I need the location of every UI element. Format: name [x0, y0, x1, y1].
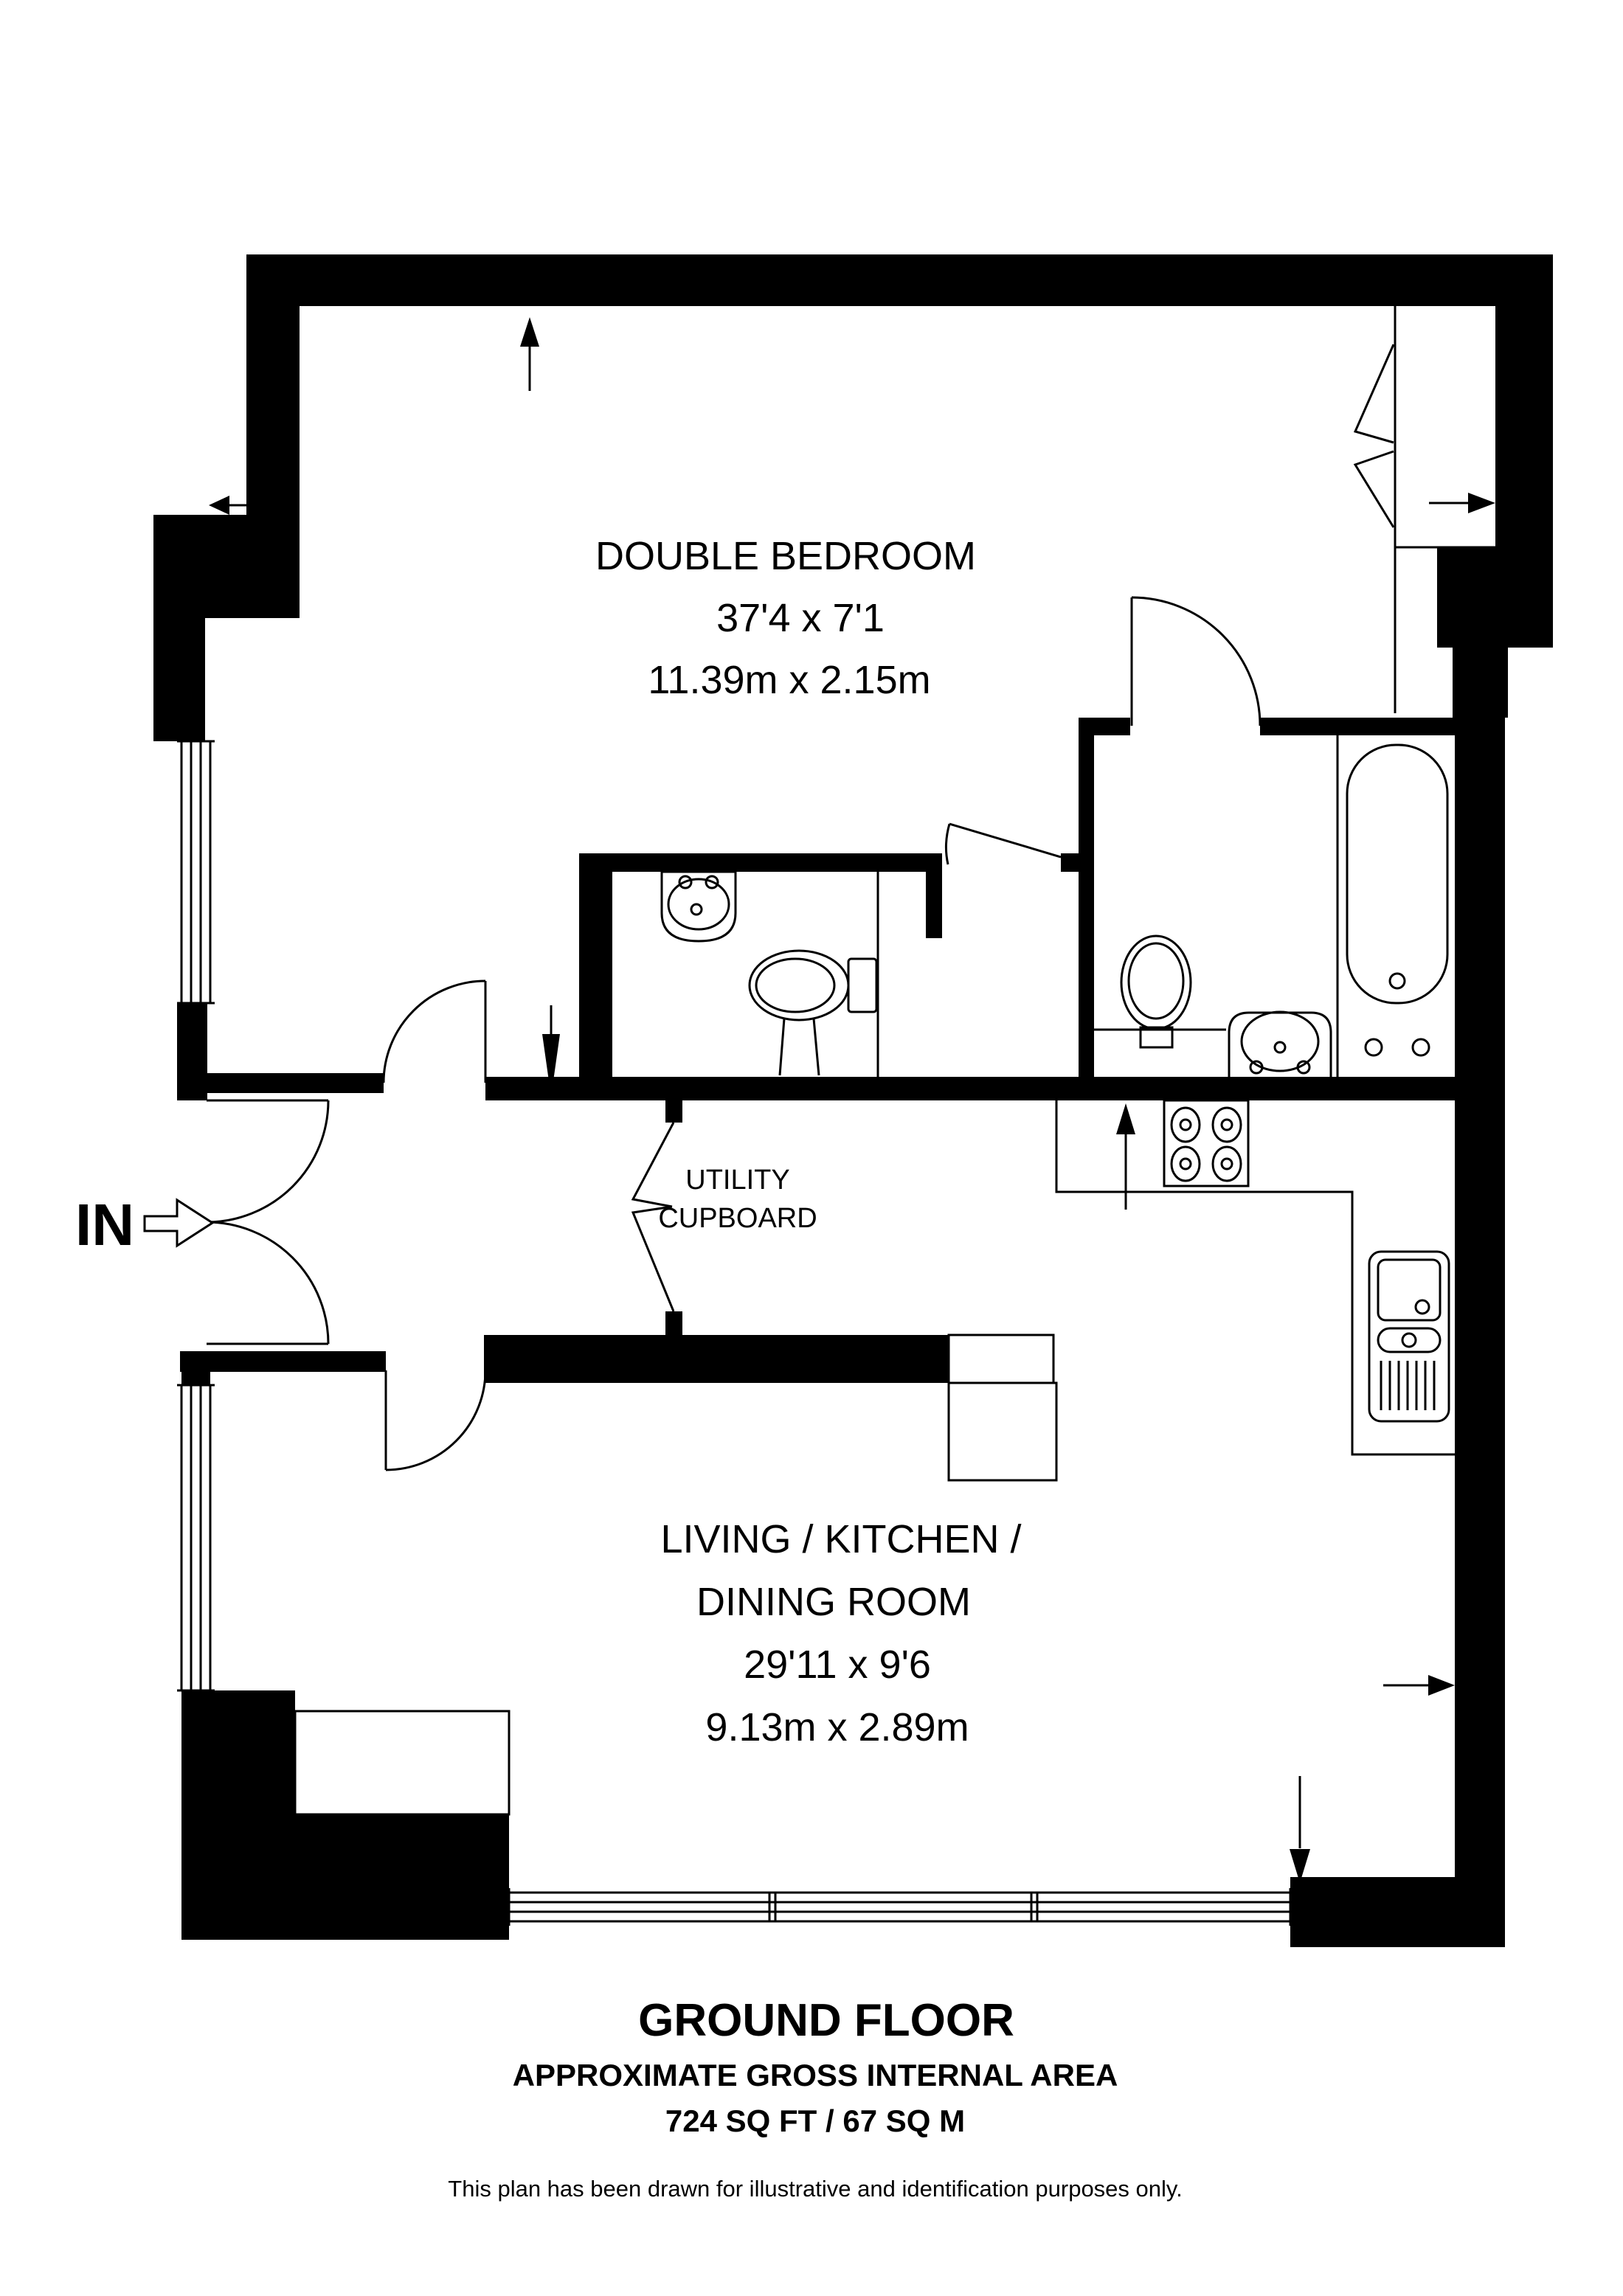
bedroom-dim-metric: 11.39m x 2.15m [648, 658, 930, 702]
wall-below-bedroom-window [177, 1003, 207, 1100]
bathroom-sink-icon [1229, 1012, 1331, 1077]
floorplan-page: IN DOUBLE BEDROOM 37'4 x 7'1 11.39m x 2.… [0, 0, 1623, 2296]
ensuite-sink-icon [662, 872, 736, 941]
area-line1: APPROXIMATE GROSS INTERNAL AREA [513, 2058, 1118, 2092]
door-living-room [386, 1370, 485, 1470]
recess-lower-left [295, 1711, 509, 1814]
arrow-up-bedroom-icon [520, 317, 539, 391]
utility-label-line1: UTILITY [685, 1165, 789, 1196]
wall-bath-top-right [1260, 718, 1455, 735]
wall-bottom-right-chunk [1290, 1877, 1505, 1947]
arrow-down-window-icon [1290, 1776, 1310, 1883]
bedroom-dim-imperial: 37'4 x 7'1 [716, 596, 885, 640]
window-bedroom-left [177, 741, 215, 1003]
arrow-up-kitchen-icon [1116, 1103, 1135, 1210]
bathtub-icon [1347, 745, 1447, 1055]
wall-upper-left-column [246, 254, 300, 515]
door-bedroom [384, 981, 485, 1083]
disclaimer-text: This plan has been drawn for illustrativ… [448, 2176, 1182, 2202]
wall-bifold-stub-bottom [665, 1311, 682, 1335]
wall-lobby-bath-divider [1079, 718, 1094, 1077]
wall-top [246, 254, 1553, 306]
floorplan-drawing: IN DOUBLE BEDROOM 37'4 x 7'1 11.39m x 2.… [0, 0, 1623, 2296]
living-name-line1: LIVING / KITCHEN / [660, 1517, 1021, 1561]
wall-hall-bottom [180, 1351, 386, 1372]
entry-arrow-icon [145, 1200, 212, 1246]
wall-lower-left-foot [295, 1814, 509, 1940]
floor-title: GROUND FLOOR [638, 1995, 1014, 2046]
living-dim-metric: 9.13m x 2.89m [705, 1705, 969, 1749]
walls [153, 254, 1553, 1947]
wall-ensuite-top [579, 853, 942, 872]
living-dim-imperial: 29'11 x 9'6 [744, 1643, 931, 1687]
wall-left-step-block [153, 515, 300, 618]
kitchen-sink-icon [1369, 1252, 1449, 1421]
wall-above-living-window [181, 1372, 210, 1385]
hob-icon [1164, 1100, 1248, 1186]
area-line2: 724 SQ FT / 67 SQ M [665, 2103, 965, 2138]
wall-door-stub [485, 1077, 509, 1100]
wall-right [1455, 718, 1505, 1947]
wall-ensuite-left [579, 853, 612, 1077]
wall-below-closet [1437, 547, 1508, 648]
wall-main-band [509, 1077, 1455, 1100]
window-living-bottom [509, 1888, 1290, 1926]
arrow-right-living-icon [1383, 1675, 1455, 1696]
wall-lower-left-mass [181, 1690, 295, 1940]
arrow-right-closet-icon [1429, 493, 1495, 513]
wardrobe-chevron-icon [1355, 344, 1394, 527]
entry-double-doors [207, 1100, 328, 1344]
bedroom-name: DOUBLE BEDROOM [595, 534, 976, 578]
wall-bedroom-bottom-left [207, 1073, 384, 1093]
wall-right-step [1453, 648, 1508, 718]
wall-utility-bottom [484, 1335, 949, 1383]
living-name-line2: DINING ROOM [696, 1580, 971, 1624]
recess-utility-wall [949, 1335, 1053, 1383]
wall-bath-top-left [1079, 718, 1130, 735]
kitchen-counter-edge [1056, 1100, 1455, 1454]
wall-lobby-stub [1061, 853, 1079, 872]
entry-label: IN [75, 1192, 134, 1258]
door-ensuite-lobby [946, 824, 1061, 864]
door-main-bathroom [1132, 597, 1260, 726]
wall-ensuite-right [926, 872, 942, 938]
wall-bifold-stub-top [665, 1100, 682, 1123]
wall-left-column [153, 618, 205, 741]
utility-label-line2: CUPBOARD [658, 1203, 817, 1234]
ensuite-toilet-icon [750, 951, 876, 1075]
window-living-left [177, 1385, 215, 1690]
kitchen-unit-block [949, 1383, 1056, 1480]
